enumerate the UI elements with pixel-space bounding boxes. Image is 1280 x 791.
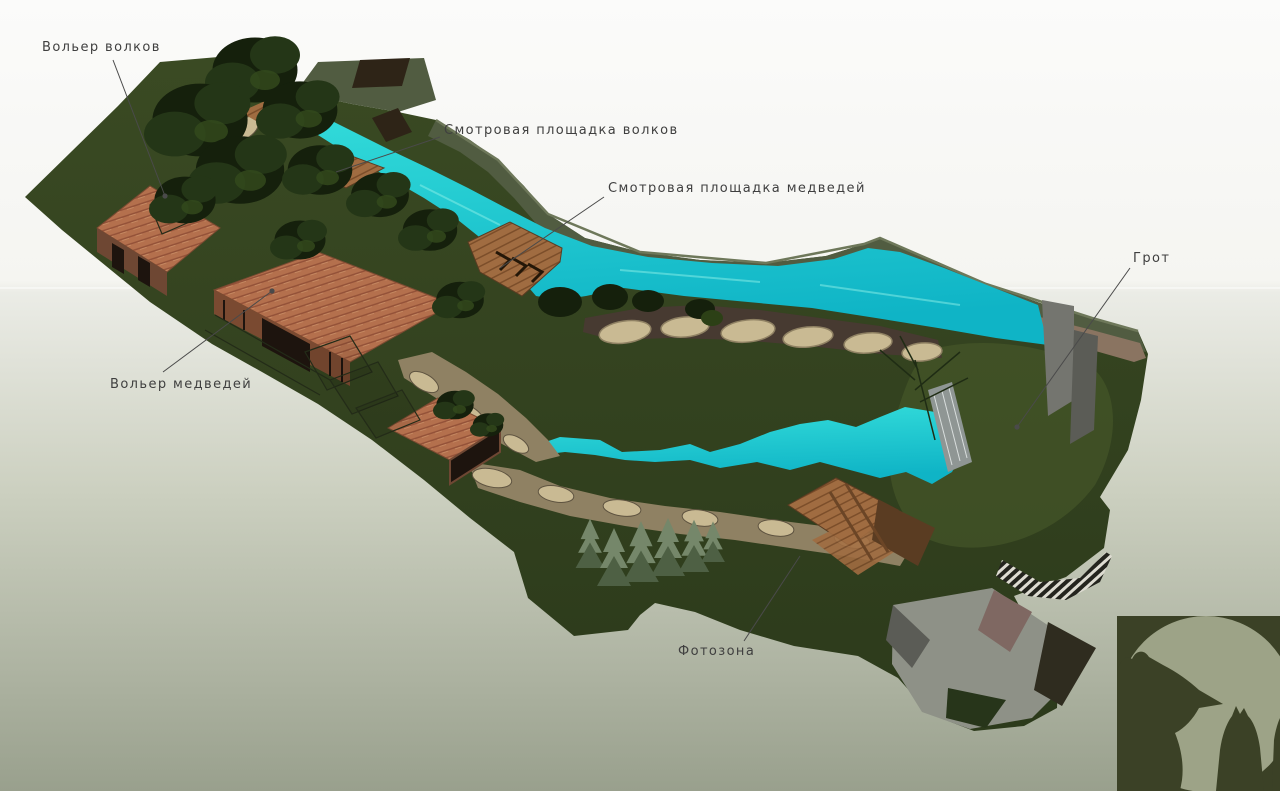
label-photo-zone: Фотозона: [678, 644, 755, 659]
label-wolf-viewpoint: Смотровая площадка волков: [444, 123, 679, 138]
scene-canvas: Вольер волковСмотровая площадка волковСм…: [0, 0, 1280, 791]
top-dark-roof: [352, 58, 410, 88]
leader-dot-bear-enclosure: [269, 288, 274, 293]
label-bear-viewpoint: Смотровая площадка медведей: [608, 181, 866, 196]
bear-and-wolf-logo: [1117, 616, 1280, 791]
site-plan-rendering: Вольер волковСмотровая площадка волковСм…: [0, 0, 1280, 791]
leader-dot-grotto: [1014, 424, 1019, 429]
label-wolf-enclosure: Вольер волков: [42, 40, 161, 55]
label-grotto: Грот: [1133, 251, 1170, 266]
leader-dot-wolf-enclosure: [162, 193, 167, 198]
label-bear-enclosure: Вольер медведей: [110, 377, 252, 392]
